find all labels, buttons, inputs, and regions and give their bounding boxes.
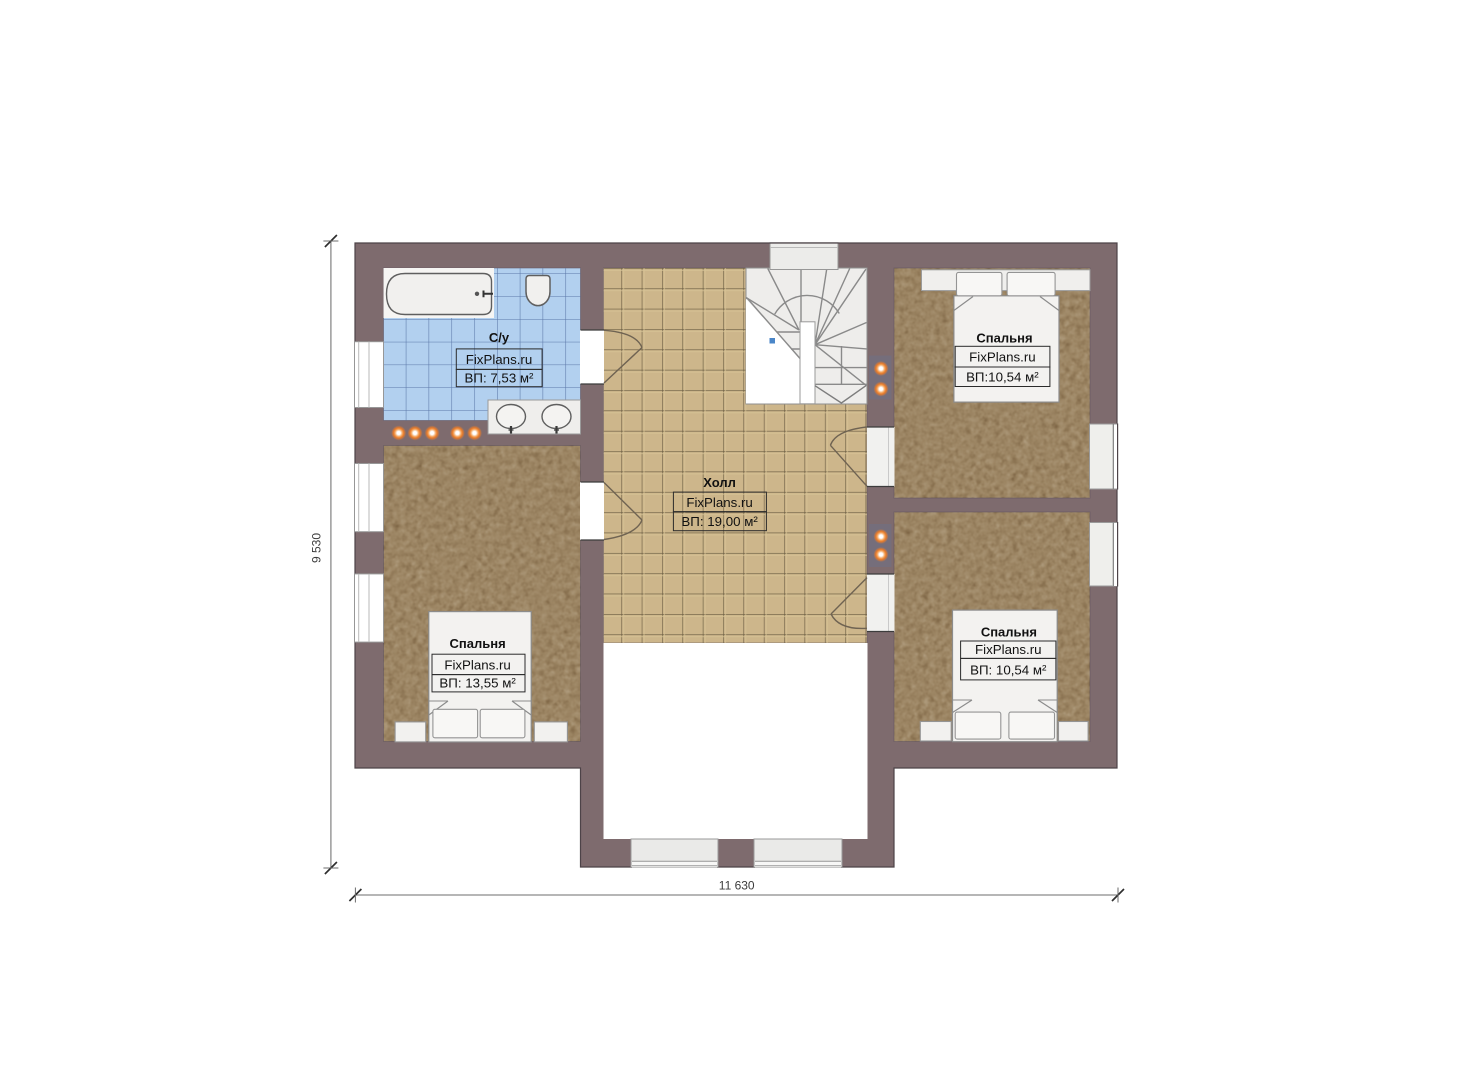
svg-text:FixPlans.ru: FixPlans.ru: [444, 657, 511, 672]
svg-text:ВП: 10,54 м²: ВП: 10,54 м²: [970, 662, 1047, 677]
svg-text:9 530: 9 530: [310, 533, 324, 563]
svg-text:ВП:10,54 м²: ВП:10,54 м²: [966, 370, 1039, 385]
svg-text:FixPlans.ru: FixPlans.ru: [969, 350, 1036, 365]
svg-text:Спальня: Спальня: [450, 636, 506, 651]
svg-text:11 630: 11 630: [719, 879, 755, 893]
svg-text:FixPlans.ru: FixPlans.ru: [466, 352, 533, 367]
svg-text:ВП: 7,53 м²: ВП: 7,53 м²: [465, 370, 535, 385]
svg-text:С/у: С/у: [489, 330, 510, 345]
svg-text:ВП: 13,55 м²: ВП: 13,55 м²: [439, 676, 516, 691]
svg-text:Холл: Холл: [703, 475, 736, 490]
svg-text:Спальня: Спальня: [976, 331, 1032, 346]
svg-text:FixPlans.ru: FixPlans.ru: [686, 495, 753, 510]
svg-text:Спальня: Спальня: [981, 625, 1037, 640]
svg-text:FixPlans.ru: FixPlans.ru: [975, 642, 1042, 657]
svg-text:ВП: 19,00 м²: ВП: 19,00 м²: [681, 514, 758, 529]
